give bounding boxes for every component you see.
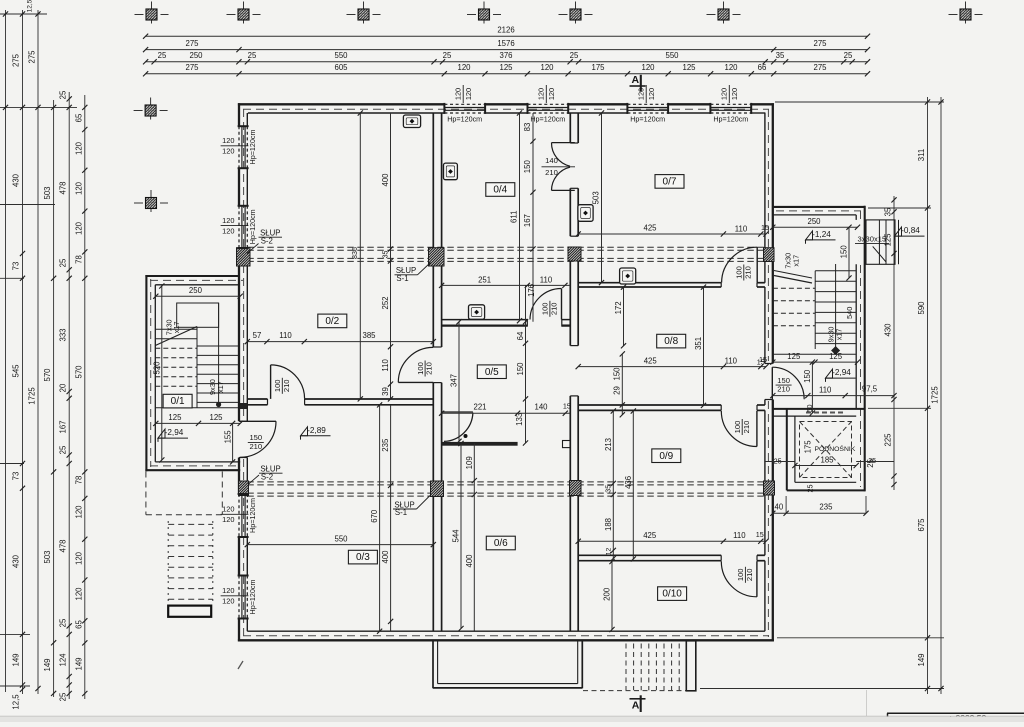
svg-text:0/5: 0/5 [485,367,499,378]
svg-text:120: 120 [222,147,234,156]
svg-text:430: 430 [884,323,893,337]
svg-text:670: 670 [370,509,379,523]
svg-text:120: 120 [730,88,739,100]
svg-text:400: 400 [465,554,474,568]
svg-text:210: 210 [745,568,754,581]
svg-text:83: 83 [523,123,532,132]
svg-text:29: 29 [613,386,622,395]
svg-text:78: 78 [74,255,83,264]
svg-text:120: 120 [464,88,473,100]
svg-text:235: 235 [819,503,833,512]
svg-text:-1,24: -1,24 [812,230,831,239]
svg-text:400: 400 [381,550,390,564]
svg-text:0/8: 0/8 [664,336,678,347]
svg-text:50: 50 [805,405,814,413]
svg-text:1725: 1725 [930,386,939,404]
svg-text:15: 15 [761,223,769,232]
svg-text:149: 149 [43,658,52,671]
svg-text:351: 351 [694,337,703,350]
svg-text:221: 221 [473,402,486,411]
svg-text:x17: x17 [792,255,801,267]
svg-text:503: 503 [591,191,600,204]
svg-text:275: 275 [12,53,21,67]
svg-text:35: 35 [606,485,613,493]
svg-text:210: 210 [742,421,751,434]
svg-text:149: 149 [12,653,21,666]
svg-text:140: 140 [534,402,548,411]
svg-text:167: 167 [523,214,532,227]
svg-text:Hp=120cm: Hp=120cm [630,114,665,123]
svg-text:120: 120 [453,88,462,100]
svg-text:12,5: 12,5 [12,694,21,710]
svg-text:25: 25 [443,51,452,60]
svg-text:15: 15 [756,530,764,539]
svg-text:540: 540 [845,307,854,319]
svg-text:109: 109 [465,456,474,469]
svg-text:124: 124 [59,653,68,667]
svg-text:175: 175 [591,63,605,72]
svg-text:x17: x17 [216,381,225,393]
svg-text:251: 251 [478,275,491,284]
svg-text:150: 150 [803,369,812,383]
svg-text:97,5: 97,5 [862,384,878,393]
svg-text:0/9: 0/9 [659,451,673,462]
svg-text:120: 120 [74,141,83,155]
svg-text:Hp=120cm: Hp=120cm [248,580,257,615]
svg-text:545: 545 [12,364,21,378]
svg-text:175: 175 [803,440,812,454]
svg-text:200: 200 [603,587,612,601]
svg-text:-2,94: -2,94 [165,428,184,437]
svg-text:0/7: 0/7 [663,177,677,188]
svg-text:605: 605 [334,63,348,72]
svg-text:12,5: 12,5 [27,0,34,12]
svg-text:120: 120 [222,597,234,606]
svg-text:120: 120 [74,587,83,601]
svg-text:436: 436 [624,476,633,489]
svg-text:176: 176 [527,284,536,297]
svg-text:425: 425 [644,356,658,365]
svg-text:100: 100 [273,379,282,392]
svg-text:-0,84: -0,84 [901,226,920,235]
svg-text:PODNOŚNIK: PODNOŚNIK [815,444,856,453]
svg-text:385: 385 [362,331,376,340]
svg-text:64: 64 [516,331,525,340]
svg-text:25: 25 [868,456,876,465]
svg-text:430: 430 [12,554,21,568]
svg-text:311: 311 [917,149,926,161]
svg-text:25: 25 [844,51,853,60]
svg-text:503: 503 [43,550,52,563]
svg-text:570: 570 [43,368,52,382]
svg-text:66: 66 [758,63,767,72]
svg-text:Hp=120cm: Hp=120cm [248,209,257,244]
svg-text:20: 20 [59,383,68,392]
svg-text:210: 210 [425,362,434,375]
svg-text:125: 125 [209,413,223,422]
svg-text:570: 570 [74,365,83,379]
svg-text:110: 110 [819,385,832,394]
svg-text:430: 430 [12,173,21,187]
svg-text:544: 544 [451,529,460,543]
svg-text:225: 225 [884,433,893,447]
svg-text:25: 25 [570,51,579,60]
svg-text:149: 149 [74,657,83,670]
svg-text:120: 120 [457,63,471,72]
svg-text:120: 120 [537,88,546,100]
svg-text:140: 140 [545,156,558,165]
svg-text:120: 120 [74,181,83,195]
svg-text:57: 57 [253,331,262,340]
svg-text:25: 25 [248,51,257,60]
svg-text:275: 275 [185,39,199,48]
svg-text:39: 39 [381,387,390,396]
svg-text:120: 120 [222,515,234,524]
svg-text:250: 250 [189,286,203,295]
svg-text:25: 25 [774,456,782,465]
svg-text:213: 213 [604,438,613,451]
svg-text:0/6: 0/6 [494,538,508,549]
svg-text:110: 110 [735,225,748,234]
svg-text:x17: x17 [835,329,844,341]
svg-text:110: 110 [279,331,292,340]
svg-text:275: 275 [185,63,199,72]
svg-text:425: 425 [643,531,657,540]
svg-text:675: 675 [917,518,926,532]
svg-text:100: 100 [736,568,745,581]
svg-text:40: 40 [775,503,784,512]
svg-text:120: 120 [647,88,656,100]
svg-text:210: 210 [777,385,790,394]
svg-text:110: 110 [733,531,746,540]
svg-text:120: 120 [540,63,554,72]
svg-text:150: 150 [249,433,262,442]
svg-text:275: 275 [813,63,827,72]
svg-text:120: 120 [222,504,234,513]
svg-text:376: 376 [499,51,512,60]
svg-text:478: 478 [59,181,68,194]
svg-text:150: 150 [516,362,525,376]
svg-text:-2,89: -2,89 [307,426,326,435]
svg-text:1725: 1725 [28,387,37,405]
svg-text:125: 125 [829,352,843,361]
svg-text:35: 35 [884,207,893,216]
svg-text:150: 150 [840,245,849,259]
svg-text:275: 275 [813,39,827,48]
svg-text:425: 425 [643,224,657,233]
svg-text:210: 210 [545,168,558,177]
svg-text:-2,94: -2,94 [832,368,851,377]
svg-text:172: 172 [614,301,623,314]
svg-text:478: 478 [59,539,68,552]
svg-text:125: 125 [168,413,182,422]
svg-text:15: 15 [757,357,765,366]
svg-text:25: 25 [59,445,68,454]
svg-text:333: 333 [59,328,68,341]
svg-text:100: 100 [733,421,742,434]
svg-text:0/1: 0/1 [171,396,185,407]
svg-text:520: 520 [152,361,161,375]
svg-text:120: 120 [74,221,83,235]
svg-text:120: 120 [222,226,234,235]
svg-text:250: 250 [807,217,821,226]
svg-text:120: 120 [74,505,83,519]
svg-text:120: 120 [74,551,83,565]
svg-text:590: 590 [917,301,926,315]
svg-text:167: 167 [59,420,68,433]
svg-text:Hp=120cm: Hp=120cm [713,114,748,123]
svg-text:252: 252 [381,296,390,309]
svg-text:25: 25 [158,51,167,60]
svg-text:25: 25 [59,258,68,267]
svg-text:110: 110 [381,359,390,372]
svg-text:120: 120 [720,88,729,100]
svg-text:x17: x17 [172,321,181,333]
svg-text:110: 110 [725,356,738,365]
svg-text:0/10: 0/10 [662,589,682,600]
svg-text:120: 120 [222,586,234,595]
svg-text:150: 150 [613,367,622,381]
svg-text:347: 347 [450,374,459,387]
svg-text:120: 120 [222,136,234,145]
svg-text:15: 15 [563,401,571,410]
svg-text:125: 125 [499,63,513,72]
svg-text:65: 65 [74,113,83,122]
svg-text:Hp=120cm: Hp=120cm [248,130,257,165]
svg-text:73: 73 [12,472,21,481]
svg-text:100: 100 [416,362,425,375]
svg-text:155: 155 [223,430,232,444]
svg-text:235: 235 [381,438,390,452]
svg-text:25: 25 [59,90,68,99]
svg-text:250: 250 [189,51,203,60]
svg-text:120: 120 [222,216,234,225]
svg-text:Hp=120cm: Hp=120cm [447,114,482,123]
svg-text:1576: 1576 [497,39,514,48]
svg-text:0/3: 0/3 [356,552,370,563]
svg-text:25: 25 [59,692,68,701]
svg-text:A: A [632,74,640,86]
svg-text:A: A [632,699,640,711]
svg-text:550: 550 [334,51,348,60]
svg-text:503: 503 [43,186,52,199]
svg-text:400: 400 [381,173,390,187]
svg-text:110: 110 [540,275,553,284]
svg-text:0/4: 0/4 [493,185,507,196]
svg-text:836: 836 [350,247,359,259]
svg-text:65: 65 [74,620,83,629]
svg-text:3x30x15: 3x30x15 [858,234,887,243]
svg-text:550: 550 [665,51,679,60]
svg-text:35: 35 [383,251,390,259]
svg-text:12: 12 [605,548,612,556]
svg-text:25: 25 [59,618,68,627]
svg-text:550: 550 [334,534,348,543]
svg-text:188: 188 [604,518,613,531]
svg-text:0/2: 0/2 [325,316,339,327]
svg-text:120: 120 [547,88,556,100]
svg-text:185: 185 [820,456,834,465]
svg-text:210: 210 [282,379,291,392]
svg-text:210: 210 [249,442,262,451]
svg-text:73: 73 [12,262,21,271]
svg-text:611: 611 [509,211,518,223]
svg-text:125: 125 [787,352,801,361]
svg-text:Hp=120cm: Hp=120cm [530,114,565,123]
svg-text:Hp=120cm: Hp=120cm [248,498,257,533]
svg-text:275: 275 [28,50,37,64]
svg-text:150: 150 [523,160,532,174]
svg-text:149: 149 [917,653,926,666]
svg-text:78: 78 [74,476,83,485]
svg-text:25: 25 [805,485,814,493]
svg-text:125: 125 [682,63,696,72]
svg-text:100: 100 [541,302,550,315]
svg-text:210: 210 [550,302,559,315]
svg-text:100: 100 [735,266,744,279]
svg-text:150: 150 [777,376,790,385]
svg-text:210: 210 [743,266,752,279]
svg-text:120: 120 [724,63,738,72]
svg-text:35: 35 [776,51,785,60]
svg-text:2126: 2126 [497,25,514,34]
svg-text:120: 120 [641,63,655,72]
